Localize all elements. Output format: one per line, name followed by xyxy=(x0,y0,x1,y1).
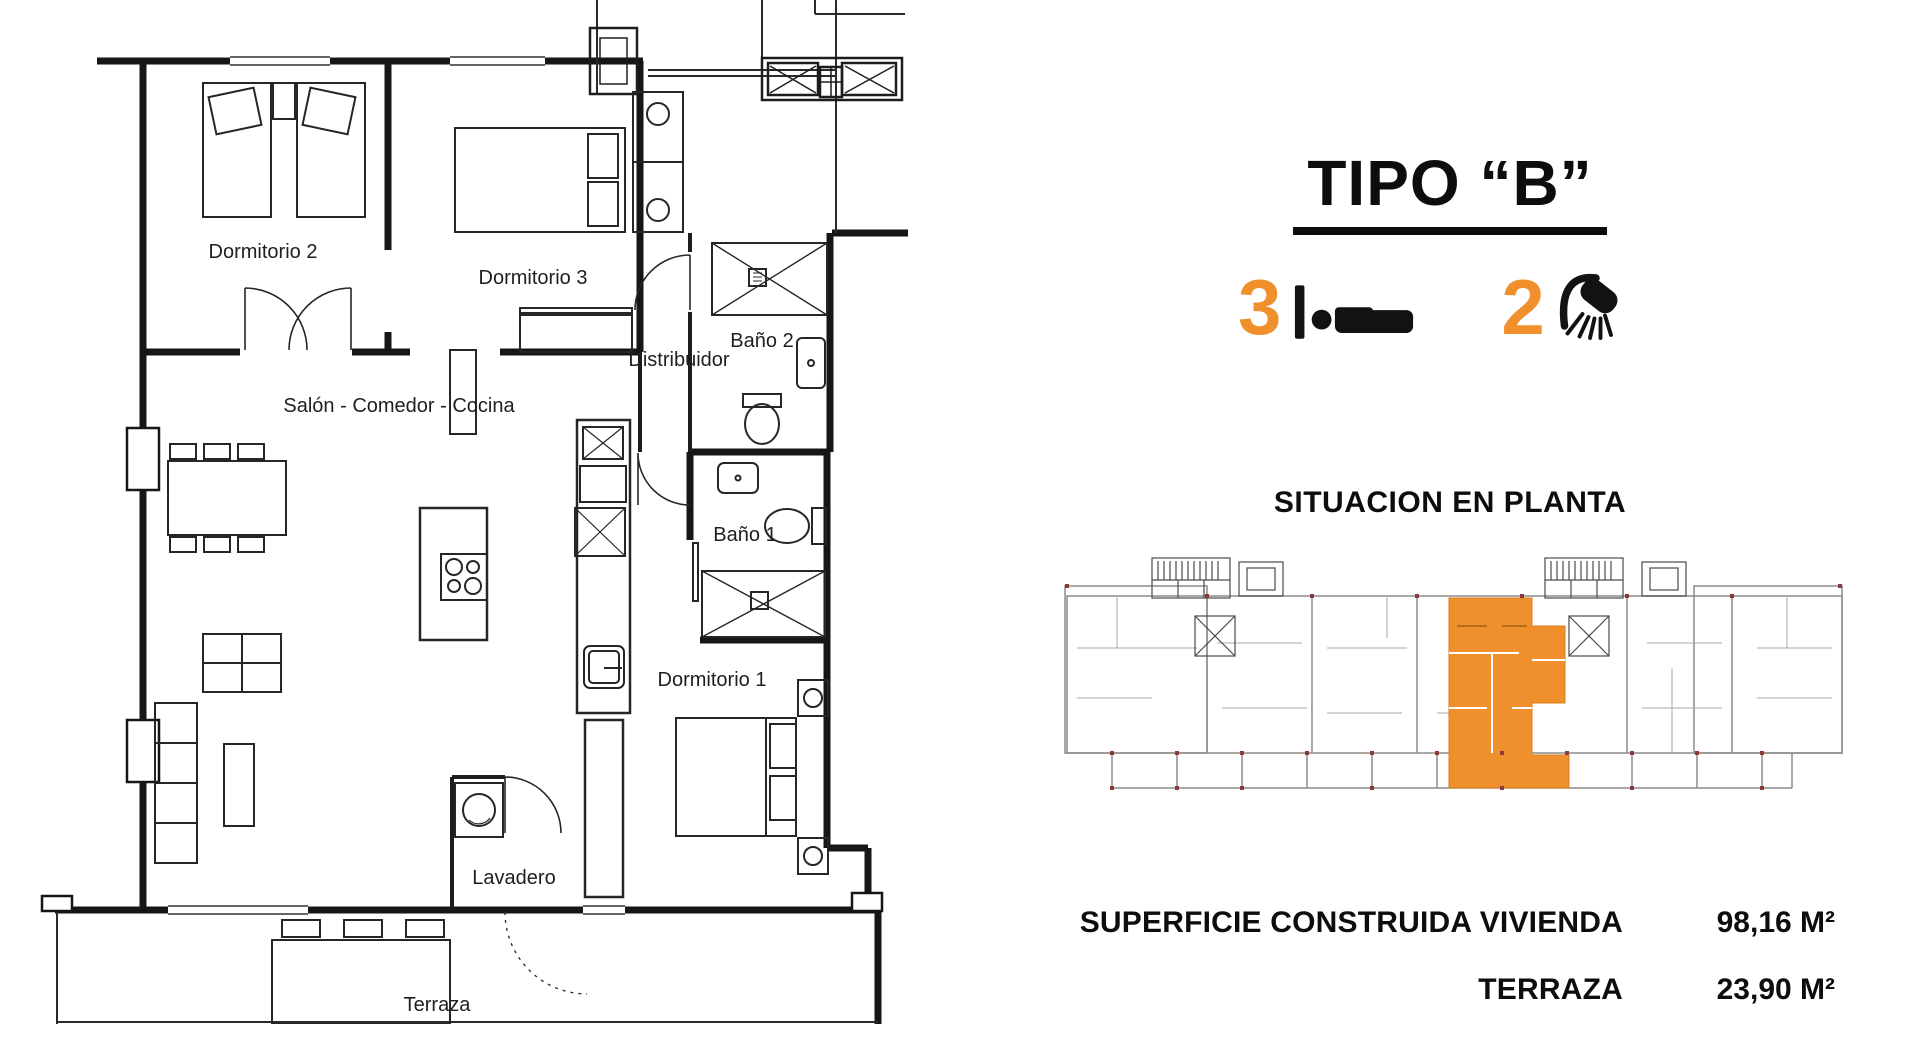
room-label-distribuidor: Distribuidor xyxy=(628,349,729,371)
surface-areas: SUPERFICIE CONSTRUIDA VIVIENDA 98,16 M² … xyxy=(1063,906,1835,1040)
situation-plan xyxy=(1057,548,1847,798)
room-label-bano-2: Baño 2 xyxy=(730,330,793,352)
window-symbols xyxy=(168,57,625,914)
room-label-salon-comedor-cocina: Salón - Comedor - Cocina xyxy=(283,395,515,417)
area-value-terraza: 23,90 M² xyxy=(1623,973,1835,1007)
info-panel: TIPO “B” 3 2 xyxy=(1055,0,1845,1024)
floor-plan: Dormitorio 2 Dormitorio 3 Baño 2 Distrib… xyxy=(0,0,960,1024)
elevator-core xyxy=(762,58,902,100)
bathrooms-count: 2 xyxy=(1501,268,1544,346)
area-label-terraza: TERRAZA xyxy=(1063,973,1623,1007)
room-label-dormitorio-1: Dormitorio 1 xyxy=(658,669,767,691)
situation-heading-wrap: SITUACION EN PLANTA xyxy=(1055,486,1845,520)
rooms-icons-row: 3 2 xyxy=(1238,268,1623,346)
room-label-dormitorio-3: Dormitorio 3 xyxy=(479,267,588,289)
area-value-vivienda: 98,16 M² xyxy=(1623,906,1835,940)
page-title: TIPO “B” xyxy=(1293,150,1606,235)
apartment-plan-page: { "floor_plan": { "rooms": [ {"id": "dor… xyxy=(0,0,1920,1024)
area-label-vivienda: SUPERFICIE CONSTRUIDA VIVIENDA xyxy=(1063,906,1623,940)
shower-icon xyxy=(1557,269,1623,346)
area-row-terraza: TERRAZA 23,90 M² xyxy=(1063,973,1835,1007)
area-row-vivienda: SUPERFICIE CONSTRUIDA VIVIENDA 98,16 M² xyxy=(1063,906,1835,940)
room-label-bano-1: Baño 1 xyxy=(713,524,776,546)
bedrooms-count: 3 xyxy=(1238,268,1281,346)
room-label-dormitorio-2: Dormitorio 2 xyxy=(209,241,318,263)
situation-heading: SITUACION EN PLANTA xyxy=(1274,486,1626,519)
title-wrap: TIPO “B” xyxy=(1055,150,1845,235)
room-label-lavadero: Lavadero xyxy=(472,867,555,889)
room-label-terraza: Terraza xyxy=(404,994,472,1016)
bed-icon xyxy=(1293,283,1415,346)
